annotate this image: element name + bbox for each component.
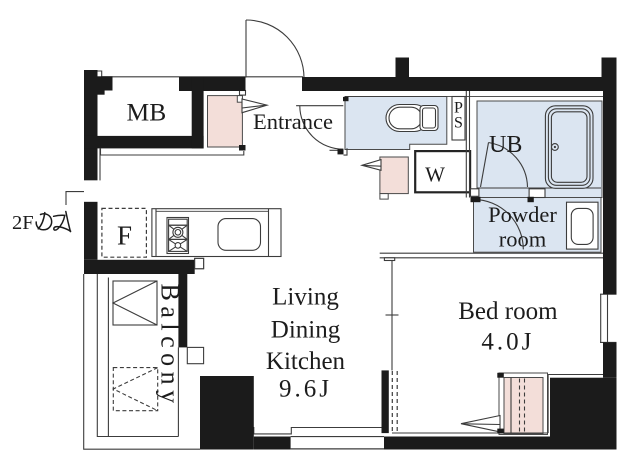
svg-text:Living: Living (272, 284, 339, 311)
svg-text:Kitchen: Kitchen (266, 348, 346, 375)
svg-text:S: S (454, 115, 463, 132)
svg-text:Entrance: Entrance (253, 109, 333, 134)
svg-text:Bed room: Bed room (458, 298, 558, 325)
svg-text:Powder: Powder (488, 202, 557, 227)
svg-text:room: room (499, 227, 547, 252)
svg-text:UB: UB (489, 132, 522, 158)
svg-text:W: W (425, 163, 445, 187)
svg-text:Dining: Dining (271, 317, 341, 344)
svg-text:MB: MB (127, 98, 167, 127)
svg-text:Balcony: Balcony (156, 284, 185, 409)
svg-text:F: F (117, 221, 132, 251)
svg-text:2F: 2F (12, 212, 34, 234)
svg-text:4.0J: 4.0J (481, 329, 534, 356)
svg-text:9.6J: 9.6J (279, 376, 332, 403)
